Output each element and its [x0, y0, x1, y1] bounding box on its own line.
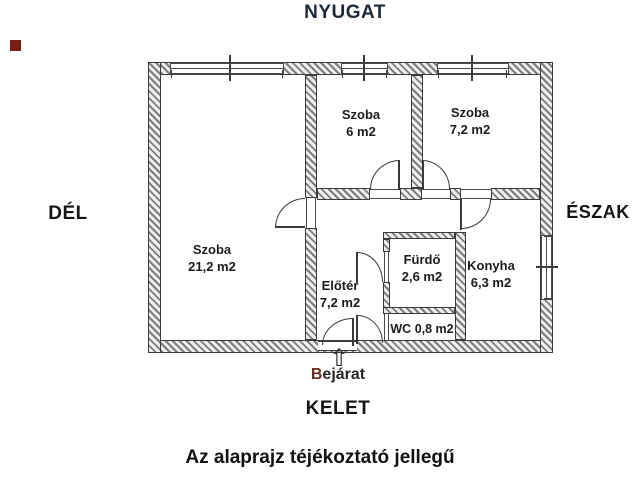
wall-right — [540, 62, 553, 353]
room-label-konyha: Konyha 6,3 m2 — [441, 257, 541, 291]
door-panel-entrance — [352, 318, 354, 346]
floor-plan-page: Szoba 21,2 m2 Szoba 6 m2 Szoba 7,2 m2 El… — [0, 0, 640, 480]
caption-text: Az alaprajz téjékoztató jellegű — [0, 447, 640, 469]
room-label-wc: WC 0,8 m2 — [362, 321, 482, 338]
room-label-szoba-72: Szoba 7,2 m2 — [420, 104, 520, 138]
door-panel-szoba-72 — [422, 160, 424, 190]
room-area: 21,2 m2 — [162, 258, 262, 275]
window-tick — [438, 70, 439, 78]
wall-left — [148, 62, 161, 353]
room-name: Szoba — [420, 104, 520, 121]
door-panel-wc — [356, 315, 358, 344]
room-area: 0,8 m2 — [415, 322, 454, 336]
door-arc-konyha — [461, 199, 491, 229]
door-arc-szoba-6 — [370, 160, 400, 189]
room-area: 6 m2 — [311, 123, 411, 140]
wall-furdo-wc-divider — [383, 307, 455, 314]
wall-mid-h2 — [400, 188, 422, 200]
window-tick — [342, 70, 343, 78]
room-area: 7,2 m2 — [420, 121, 520, 138]
window-szoba-large — [170, 63, 284, 74]
door-arc-szoba-72 — [422, 160, 450, 189]
red-marker-icon — [10, 40, 21, 51]
room-area: 7,2 m2 — [290, 294, 390, 311]
room-name: WC — [390, 322, 411, 336]
window-tick — [282, 70, 283, 78]
entrance-label: Bejárat — [288, 366, 388, 384]
window-szoba-72 — [437, 63, 509, 74]
door-panel-szoba-large — [275, 226, 305, 228]
window-tick — [171, 70, 172, 78]
door-arc-szoba-large — [275, 198, 305, 228]
threshold-szoba-large — [306, 198, 316, 228]
room-name: Szoba — [162, 241, 262, 258]
room-label-szoba-6: Szoba 6 m2 — [311, 106, 411, 140]
compass-east: KELET — [148, 398, 528, 420]
window-tick — [506, 70, 507, 78]
window-tick — [229, 55, 231, 81]
room-label-szoba-large: Szoba 21,2 m2 — [162, 241, 262, 275]
wall-mid-h4 — [491, 188, 540, 200]
wall-mid-h1 — [317, 188, 370, 200]
door-panel-szoba-6 — [398, 160, 400, 190]
window-tick — [471, 55, 473, 81]
compass-south: DÉL — [28, 203, 108, 225]
threshold-szoba-72 — [422, 189, 450, 199]
compass-west: NYUGAT — [150, 2, 540, 24]
room-name: Konyha — [441, 257, 541, 274]
window-tick — [544, 298, 552, 299]
compass-north: ÉSZAK — [556, 202, 640, 223]
window-tick — [363, 55, 365, 81]
threshold-konyha — [461, 189, 491, 199]
window-tick — [386, 70, 387, 78]
threshold-szoba-6 — [370, 189, 400, 199]
window-tick — [544, 236, 552, 237]
door-panel-konyha — [460, 199, 462, 230]
door-arc-entrance — [322, 318, 353, 345]
wall-furdo-top — [383, 232, 455, 239]
room-area: 6,3 m2 — [441, 274, 541, 291]
room-name: Szoba — [311, 106, 411, 123]
